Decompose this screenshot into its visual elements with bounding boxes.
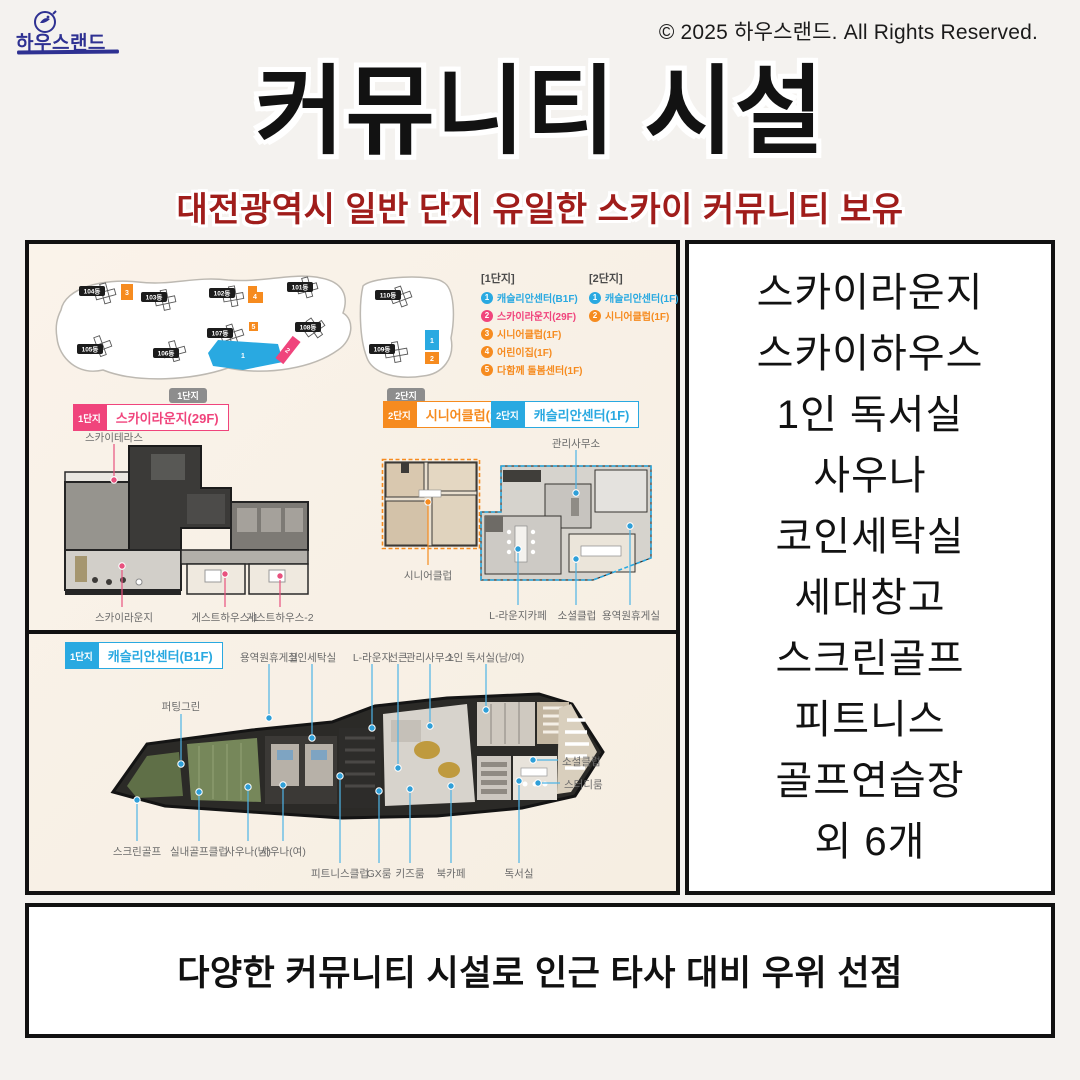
room-label-screengolf: 스크린골프 [113, 844, 161, 859]
facility-item: 코인세탁실 [776, 507, 965, 568]
legend1-item: 1캐슬리안센터(B1F) [481, 290, 589, 305]
legend2-item: 2시니어클럽(1F) [589, 308, 697, 323]
bld-105: 105동 [82, 346, 99, 354]
legend-num-icon: 3 [481, 328, 493, 340]
room-label-bookcafe: 북카페 [437, 866, 466, 881]
complex2-label: 2단지 [395, 390, 417, 401]
room-label-gx: GX룸 [367, 866, 392, 881]
marker4-num: 4 [253, 294, 257, 301]
room-label-sky-terrace: 스카이테라스 [85, 430, 143, 445]
facility-list-panel: 스카이라운지 스카이하우스 1인 독서실 사우나 코인세탁실 세대창고 스크린골… [685, 240, 1055, 895]
room-label-reading1p: 1인 독서실(남/여) [448, 650, 525, 665]
room-label-social1f: 소셜클럽 [558, 608, 597, 623]
legend-complex2: [2단지] 1캐슬리안센터(1F) 2시니어클럽(1F) [589, 270, 697, 326]
room-label-sky-lounge: 스카이라운지 [95, 610, 153, 625]
legend-num-icon: 2 [481, 310, 493, 322]
room-label-senior: 시니어클럽 [404, 568, 452, 583]
legend2-item: 1캐슬리안센터(1F) [589, 290, 697, 305]
marker1-num: 1 [241, 353, 245, 360]
facility-item: 사우나 [813, 446, 926, 507]
marker2-1-num: 1 [430, 338, 434, 345]
room-label-putting: 퍼팅그린 [162, 699, 201, 714]
marker5-num: 5 [252, 324, 256, 331]
bld-107: 107동 [212, 330, 229, 338]
room-label-sauna-f: 사우나(여) [260, 844, 306, 859]
summary-banner: 다양한 커뮤니티 시설로 인근 타사 대비 우위 선점 [25, 903, 1055, 1038]
legend-num-icon: 2 [589, 310, 601, 322]
marker3-num: 3 [125, 290, 129, 297]
skylounge-badge: 1단지 스카이라운지(29F) [73, 404, 229, 431]
bld-110: 110동 [380, 292, 396, 300]
legend1-title: [1단지] [481, 270, 589, 286]
legend-num-icon: 1 [481, 292, 493, 304]
facility-item: 외 6개 [815, 812, 926, 873]
bld-108: 108동 [300, 324, 317, 332]
poster-page: 하우스랜드 © 2025 하우스랜드. All Rights Reserved.… [0, 0, 1080, 1080]
facility-item: 스카이라운지 [757, 263, 984, 324]
legend1-item: 5다함께 돌봄센터(1F) [481, 362, 589, 377]
legend1-item: 3시니어클럽(1F) [481, 326, 589, 341]
floorplans-panel: 1 2 3 4 5 1 2 104동 103동 102동 101동 105동 1… [25, 240, 680, 895]
seniorclub-floorplan [381, 458, 481, 550]
bld-106: 106동 [158, 350, 175, 358]
legend-num-icon: 1 [589, 292, 601, 304]
room-label-fitness: 피트니스클럽 [311, 866, 369, 881]
bld-103: 103동 [146, 294, 163, 302]
legend-num-icon: 4 [481, 346, 493, 358]
castlianb1f-badge: 1단지 캐슬리안센터(B1F) [65, 642, 223, 669]
facility-item: 1인 독서실 [777, 385, 964, 446]
room-label-reading: 독서실 [505, 866, 534, 881]
skylounge-floorplan [59, 440, 314, 600]
facility-item: 세대창고 [794, 568, 945, 629]
facility-item: 스크린골프 [776, 629, 965, 690]
room-label-laundry: 코인세탁실 [288, 650, 336, 665]
page-subtitle: 대전광역시 일반 단지 유일한 스카이 커뮤니티 보유 [0, 182, 1080, 231]
bld-104: 104동 [84, 288, 101, 296]
section-divider [29, 630, 676, 634]
room-label-staff1f: 용역원휴게실 [602, 608, 660, 623]
facility-item: 스카이하우스 [757, 324, 984, 385]
complex1-label: 1단지 [177, 390, 199, 401]
castlian1f-badge: 2단지 캐슬리안센터(1F) [491, 401, 639, 428]
room-label-cafe: L-라운지카페 [489, 608, 547, 623]
room-label-kids: 키즈룸 [396, 866, 425, 881]
room-label-office1f: 관리사무소 [552, 436, 600, 451]
summary-text: 다양한 커뮤니티 시설로 인근 타사 대비 우위 선점 [177, 945, 903, 996]
room-label-indoorgolf: 실내골프클럽 [170, 844, 228, 859]
room-label-guest2: 게스트하우스-2 [246, 610, 313, 625]
facility-item: 피트니스 [794, 690, 945, 751]
castlian1f-floorplan [473, 460, 657, 587]
legend1-item: 4어린이집(1F) [481, 344, 589, 359]
marker2-2-num: 2 [430, 356, 434, 363]
bld-101: 101동 [292, 284, 309, 292]
legend1-item: 2스카이라운지(29F) [481, 308, 589, 323]
room-label-sunken: 선큰 [388, 650, 407, 665]
room-label-social-b1f: 소셜클럽 [562, 754, 601, 769]
facility-item: 골프연습장 [776, 751, 965, 812]
bld-102: 102동 [214, 290, 231, 298]
page-title: 커뮤니티 시설 [0, 56, 1080, 168]
site-plan-map: 1 2 3 4 5 1 2 104동 103동 102동 101동 105동 1… [43, 258, 477, 416]
room-label-llounge: L-라운지 [353, 650, 391, 665]
bld-109: 109동 [374, 346, 391, 354]
copyright-text: © 2025 하우스랜드. All Rights Reserved. [659, 16, 1038, 46]
legend2-title: [2단지] [589, 270, 697, 286]
room-label-study: 스터디룸 [564, 777, 603, 792]
legend-num-icon: 5 [481, 364, 493, 376]
legend-complex1: [1단지] 1캐슬리안센터(B1F) 2스카이라운지(29F) 3시니어클럽(1… [481, 270, 589, 380]
